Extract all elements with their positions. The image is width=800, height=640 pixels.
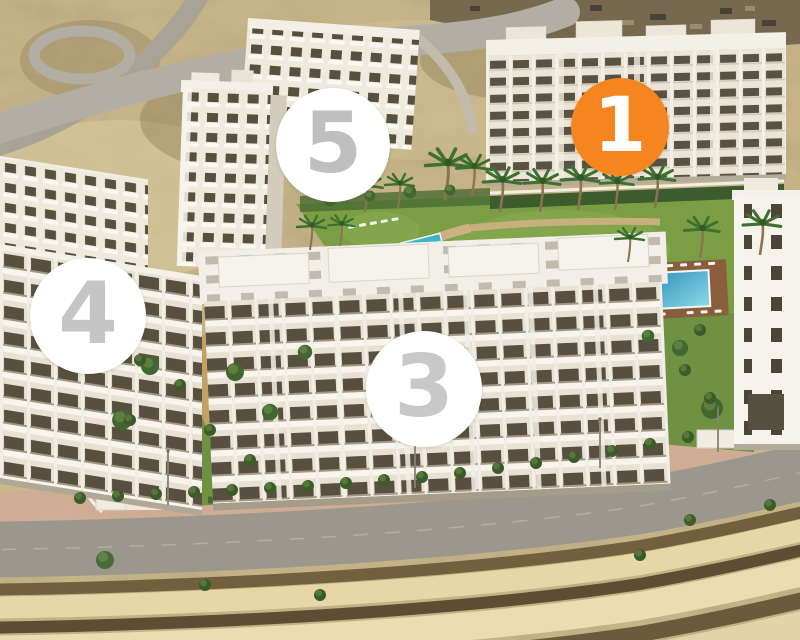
phase-marker-5-label: 5 [304,101,362,185]
phase-marker-3[interactable]: 3 [366,331,482,447]
phase-marker-4-label: 4 [58,271,118,357]
aerial-render: 5 1 4 3 [0,0,800,640]
phase-marker-3-label: 3 [394,344,454,430]
phase-marker-1-label: 1 [594,87,647,163]
phase-marker-5[interactable]: 5 [276,88,390,202]
phase-marker-1[interactable]: 1 [571,78,669,176]
phase-marker-4[interactable]: 4 [30,258,146,374]
